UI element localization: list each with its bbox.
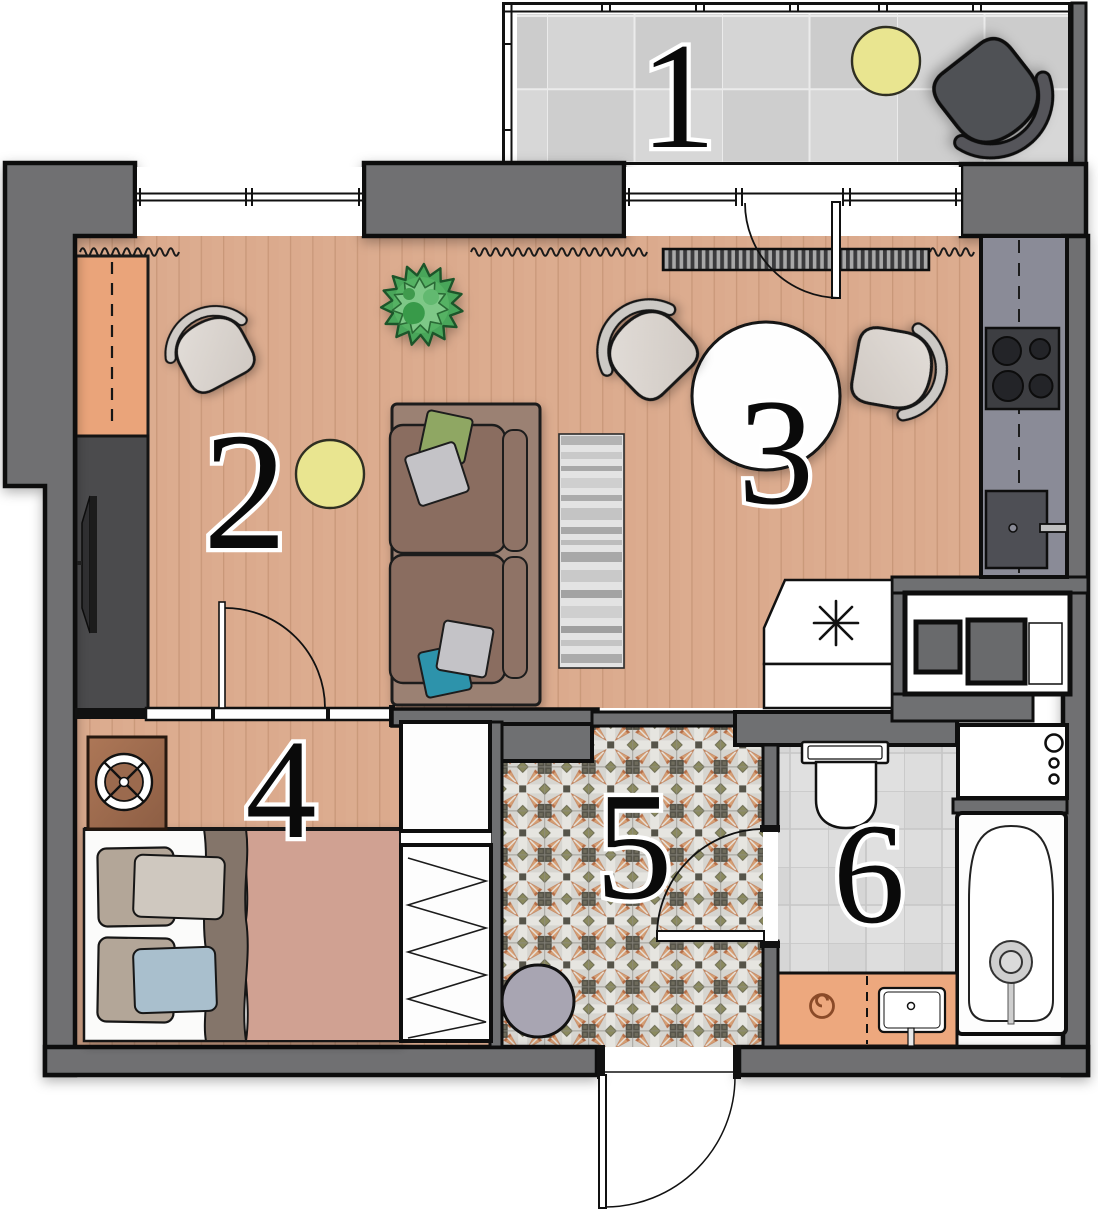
svg-text:4: 4 [246, 710, 317, 868]
svg-text:5: 5 [596, 762, 673, 932]
svg-text:6: 6 [833, 795, 905, 954]
svg-text:2: 2 [203, 399, 287, 585]
svg-text:3: 3 [738, 368, 814, 536]
svg-text:1: 1 [640, 12, 716, 180]
